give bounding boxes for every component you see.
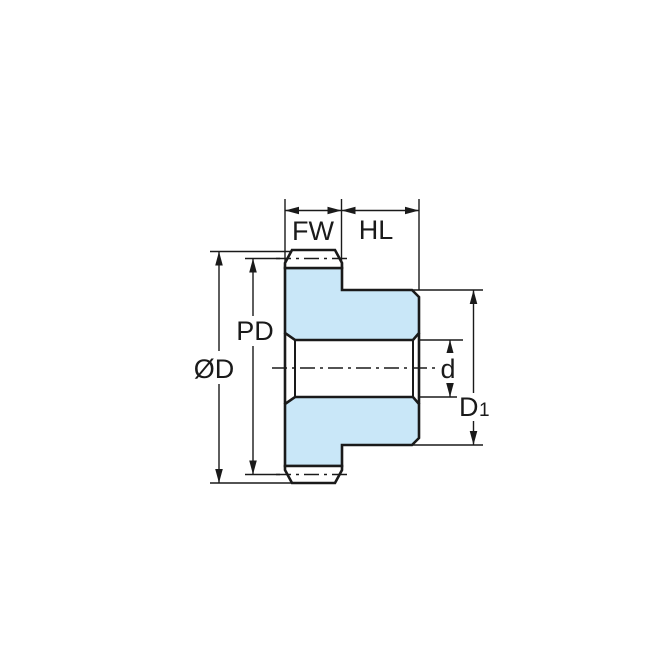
label-hub-length: HL	[359, 215, 394, 245]
label-outside-diameter: ØD	[194, 354, 235, 384]
label-face-width: FW	[292, 216, 334, 246]
gear-body-lower	[285, 397, 419, 466]
label-bore-diameter: d	[440, 354, 455, 384]
label-hub-diameter: D	[459, 392, 479, 422]
gear-cross-section	[272, 250, 444, 483]
gear-dimension-diagram: FW HL PD ØD d D 1	[0, 0, 670, 670]
diagram-svg: FW HL PD ØD d D 1	[0, 0, 670, 670]
gear-body-upper	[285, 268, 419, 340]
label-pitch-diameter: PD	[236, 316, 274, 346]
label-hub-diameter-subscript: 1	[479, 400, 490, 421]
